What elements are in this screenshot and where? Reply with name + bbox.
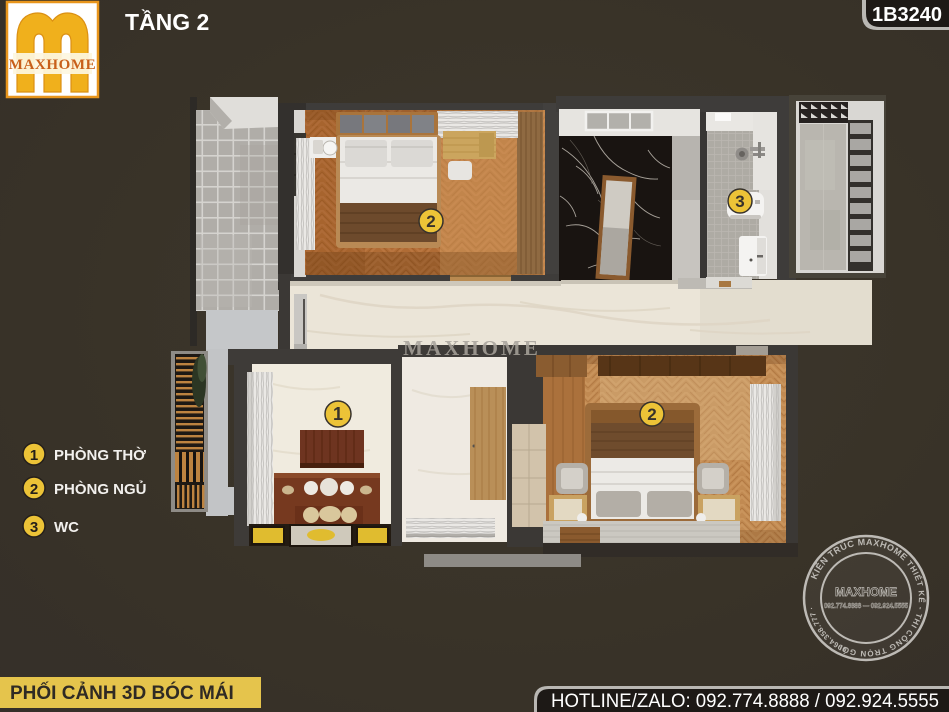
svg-text:TẦNG 2: TẦNG 2 (125, 8, 209, 35)
svg-text:1: 1 (333, 404, 343, 424)
svg-text:HOTLINE/ZALO: 092.774.8888 / 0: HOTLINE/ZALO: 092.774.8888 / 092.924.555… (551, 691, 939, 712)
svg-text:PHÒNG THỜ: PHÒNG THỜ (54, 446, 146, 464)
svg-text:MAXHOME: MAXHOME (835, 585, 897, 599)
svg-text:2: 2 (30, 481, 38, 498)
svg-text:1: 1 (30, 447, 38, 464)
svg-text:PHỐI CẢNH 3D BÓC MÁI: PHỐI CẢNH 3D BÓC MÁI (10, 682, 234, 704)
svg-text:PHÒNG NGỦ: PHÒNG NGỦ (54, 480, 147, 498)
svg-text:MAXHOME: MAXHOME (9, 57, 97, 73)
svg-text:3: 3 (30, 519, 38, 536)
svg-text:3: 3 (735, 192, 744, 211)
svg-text:1B3240: 1B3240 (872, 4, 942, 26)
svg-text:WC: WC (54, 519, 79, 536)
svg-text:2: 2 (426, 212, 435, 231)
svg-text:2: 2 (647, 405, 656, 424)
svg-text:MAXHOME: MAXHOME (403, 336, 541, 360)
svg-text:092.774.8888 — 092.924.5555: 092.774.8888 — 092.924.5555 (824, 603, 908, 610)
